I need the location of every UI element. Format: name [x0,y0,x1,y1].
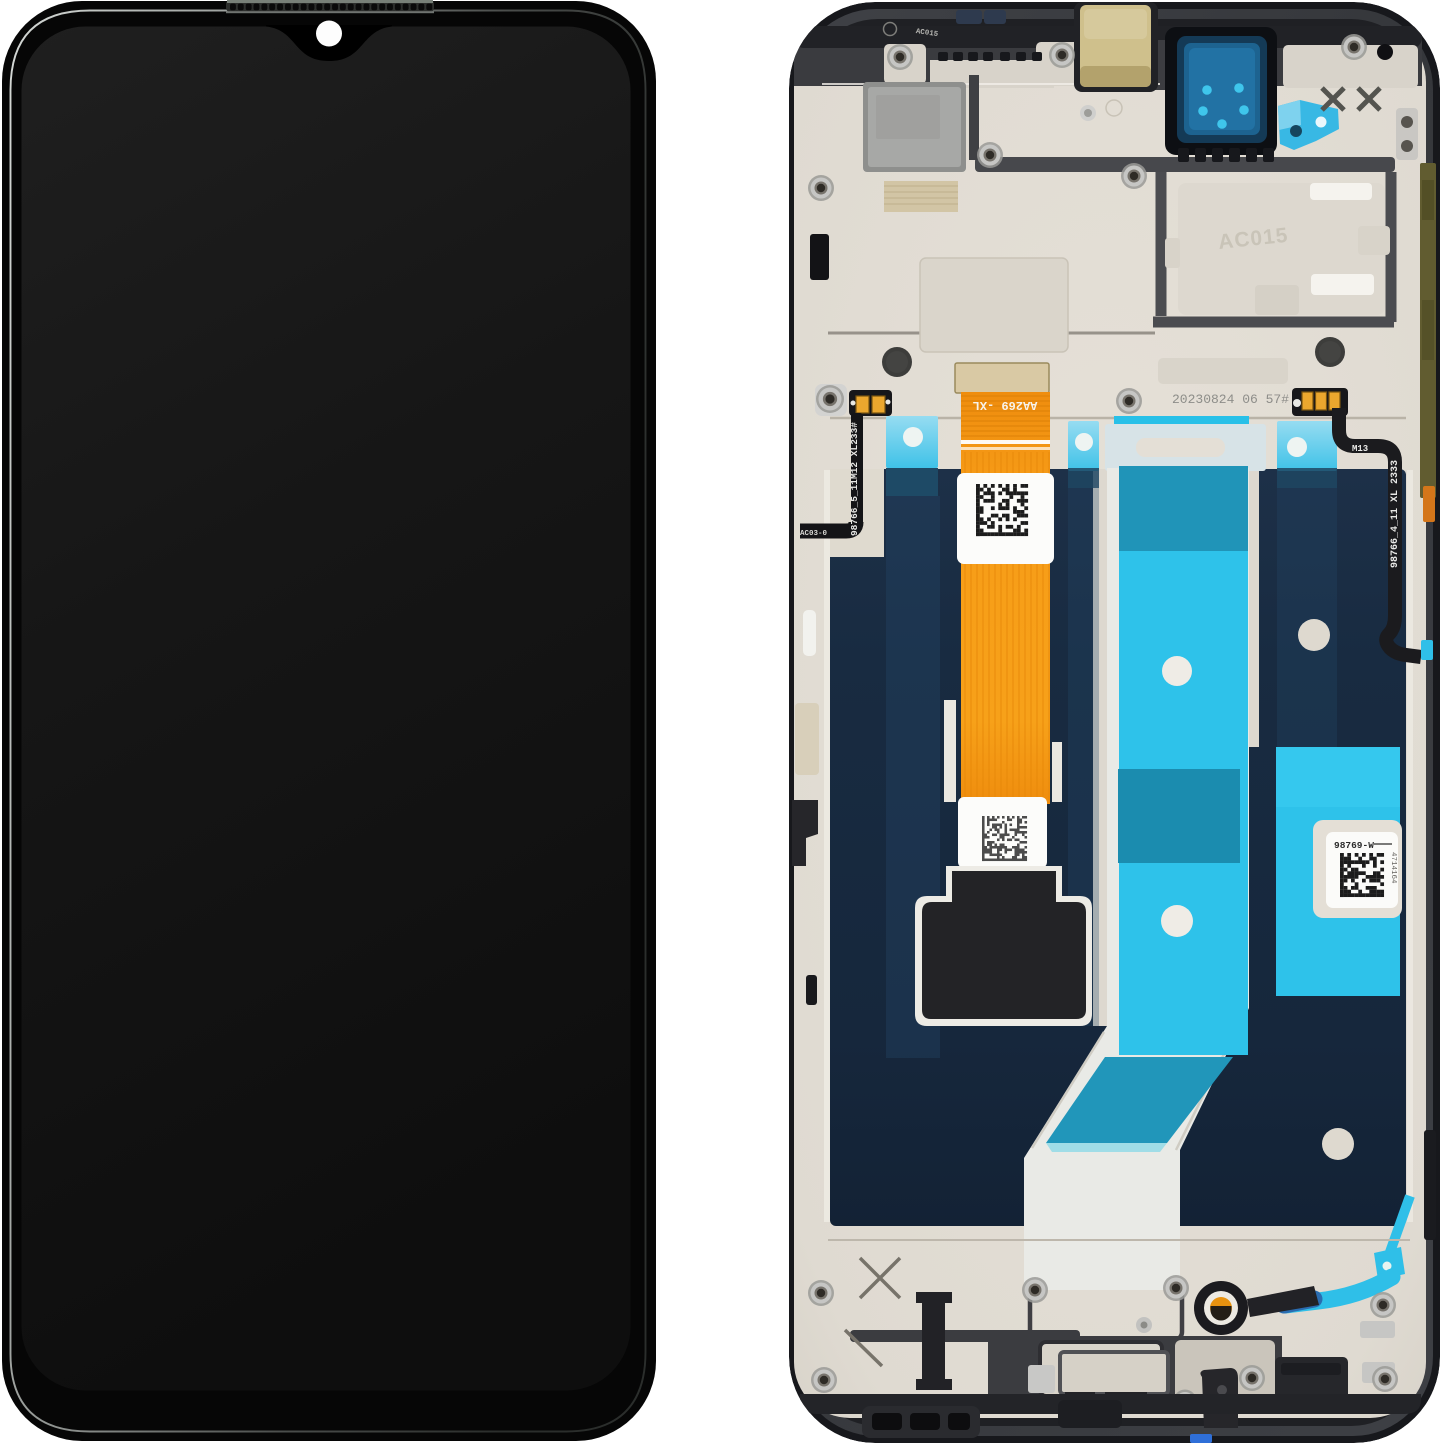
svg-text:AC03-0: AC03-0 [800,530,828,538]
svg-text:98769-W: 98769-W [1334,840,1374,851]
svg-text:20230824 06 57#: 20230824 06 57# [1172,392,1289,407]
svg-text:98766_4_11 XL 2333: 98766_4_11 XL 2333 [1390,460,1401,568]
svg-text:4714164: 4714164 [1389,852,1397,884]
svg-text:98766_5_11M12 XL233#: 98766_5_11M12 XL233# [849,422,860,536]
svg-text:AA269 -XL: AA269 -XL [973,398,1038,412]
svg-text:M13: M13 [1352,444,1368,454]
